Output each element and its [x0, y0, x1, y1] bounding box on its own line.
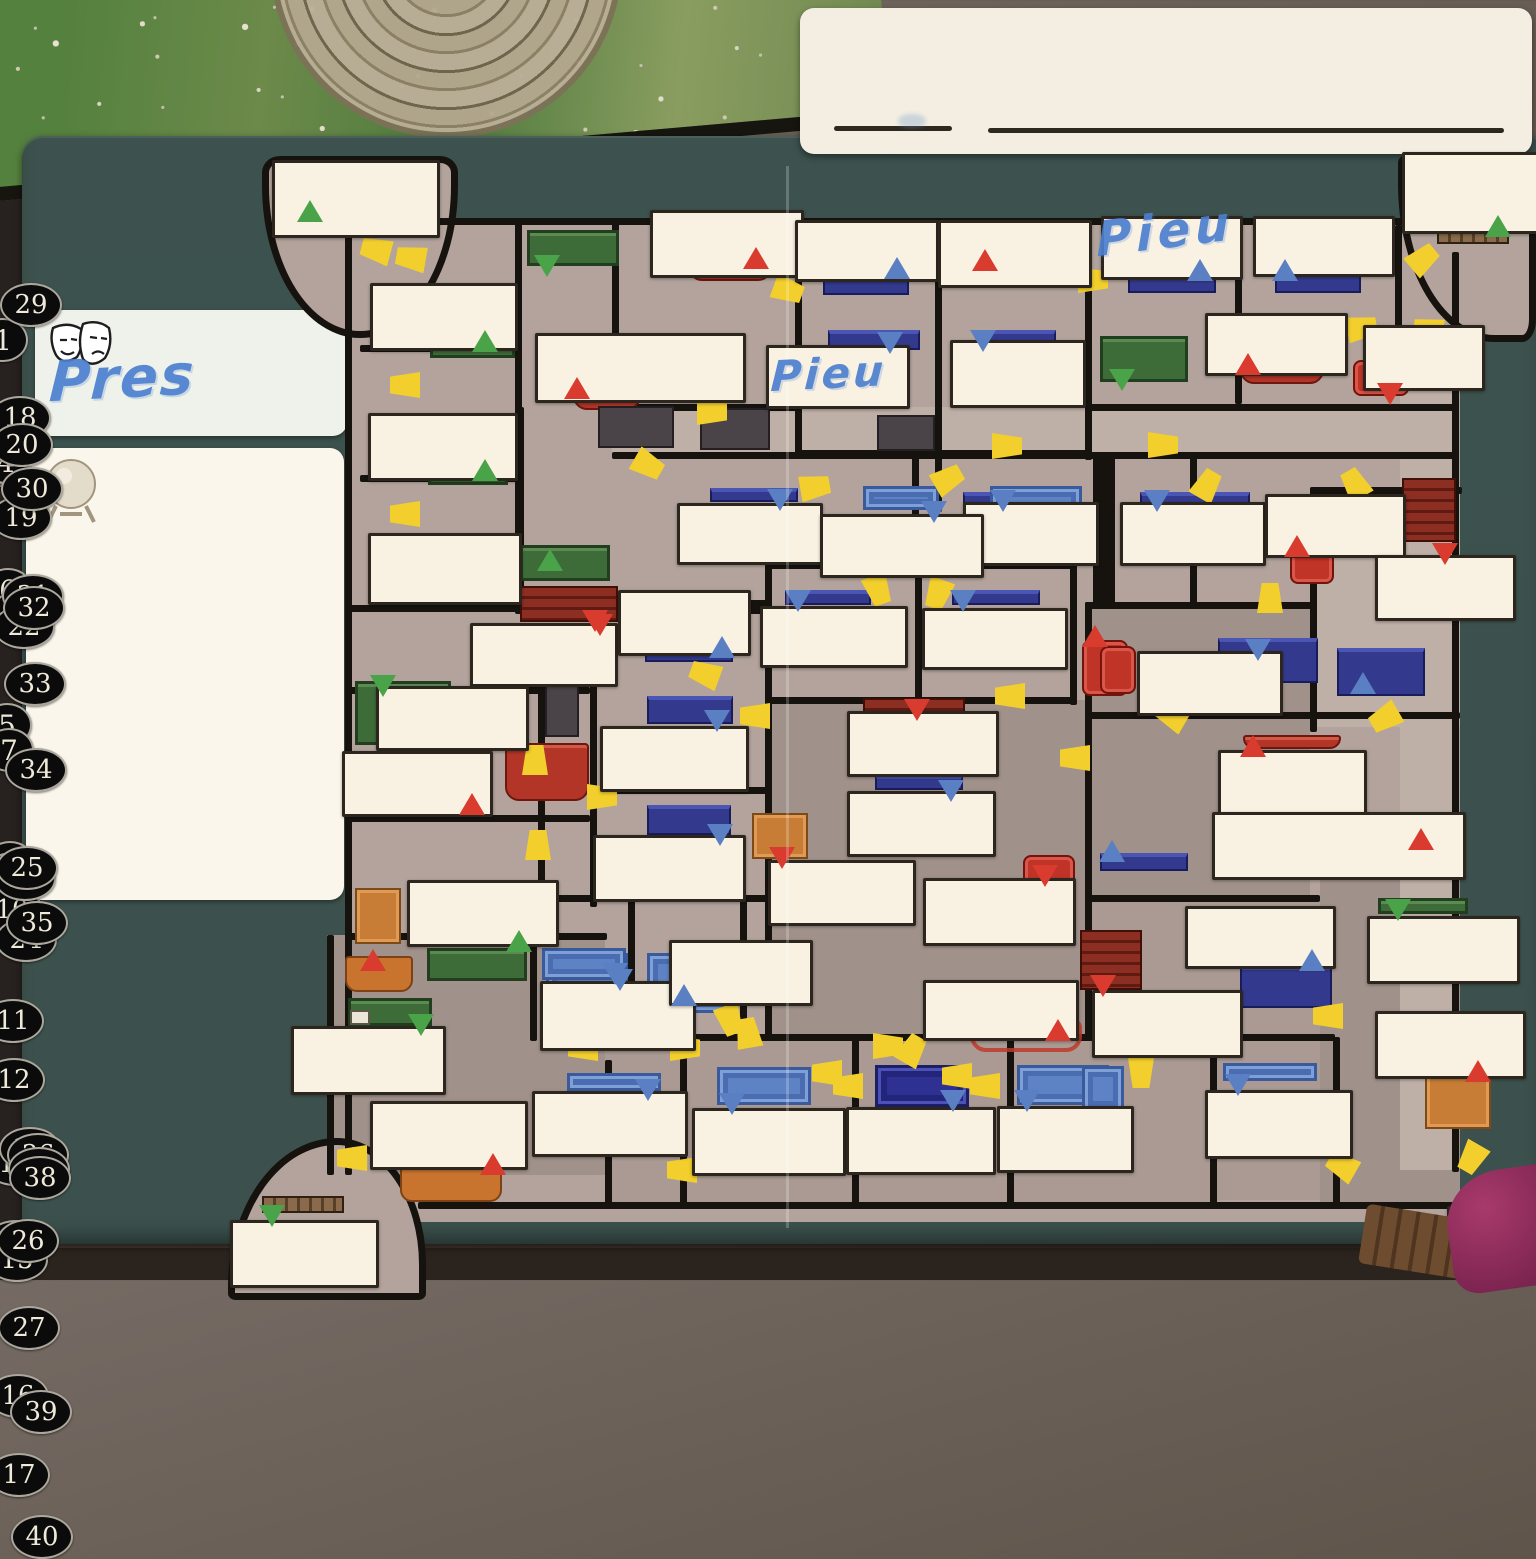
blank-room-label: [593, 835, 746, 902]
blank-room-label: [795, 220, 939, 282]
blank-room-label: [1253, 216, 1395, 277]
wall-segment: [1395, 225, 1402, 333]
blank-room-label: [847, 791, 996, 857]
blank-room-label: [368, 413, 518, 481]
blank-room-label: [1402, 152, 1536, 234]
blank-room-label: [1367, 916, 1520, 984]
room-number-badge: 38: [9, 1156, 71, 1200]
blue-bed: [1337, 648, 1425, 696]
small-door: [350, 1010, 370, 1025]
bookshelf: [1402, 478, 1456, 542]
blank-room-label: [997, 1106, 1134, 1173]
room-number-badge: 35: [6, 901, 68, 945]
wooden-cabinet: [355, 888, 401, 944]
room-number-badge: 30: [1, 467, 63, 511]
blank-room-label: [1375, 555, 1516, 621]
blank-room-label: [1218, 750, 1367, 817]
green-bed: [520, 545, 610, 581]
blank-room-label: [846, 1107, 996, 1175]
blank-room-label: [470, 623, 618, 687]
blank-room-label: [820, 514, 984, 578]
room-number-badge: 11: [0, 999, 44, 1043]
blank-room-label: [1363, 325, 1485, 391]
blue-bed: [1240, 966, 1332, 1008]
wall-segment: [1085, 404, 1457, 411]
wall-segment: [915, 565, 922, 703]
wall-segment: [418, 1202, 1458, 1209]
blank-room-label: [938, 220, 1092, 288]
blank-room-label: [922, 608, 1068, 670]
blank-room-label: [618, 590, 751, 656]
blank-room-label: [368, 533, 522, 605]
blank-room-label: [760, 606, 908, 668]
wall-segment: [1085, 895, 1320, 902]
blank-room-label: [532, 1091, 688, 1157]
blank-room-label: [768, 860, 916, 926]
blank-room-label: [950, 340, 1086, 408]
blank-room-label: [1092, 990, 1243, 1058]
blank-room-label: [1205, 313, 1348, 376]
blank-room-label: [692, 1108, 846, 1176]
red-armchair: [1100, 646, 1136, 694]
room-number-badge: 29: [0, 283, 62, 327]
room-number-badge: 40: [11, 1515, 73, 1559]
blank-room-label: [1375, 1011, 1526, 1079]
room-number-badge: 20: [0, 423, 53, 467]
blank-room-label: [600, 726, 749, 792]
room-number-badge: 33: [4, 662, 66, 706]
blank-room-label: [923, 878, 1076, 946]
room-number-badge: 27: [0, 1306, 60, 1350]
blank-room-label: [370, 283, 518, 351]
room-number-badge: 12: [0, 1058, 45, 1102]
blank-room-label: [376, 686, 529, 751]
alcove: [545, 683, 579, 737]
blank-room-label: [1205, 1090, 1353, 1159]
blank-room-label: [847, 711, 999, 777]
room-number-badge: 26: [0, 1219, 59, 1263]
alcove: [877, 415, 935, 451]
wall-segment: [612, 452, 1457, 459]
blank-room-label: [535, 333, 746, 403]
board-fold-crease: [786, 166, 789, 1228]
room-number-badge: 32: [3, 586, 65, 630]
green-bed: [427, 948, 527, 981]
blank-room-label: [370, 1101, 528, 1170]
blank-room-label: [1137, 651, 1283, 716]
wall-segment: [1070, 565, 1077, 705]
blank-room-label: [650, 210, 804, 278]
blank-room-label: [1120, 502, 1266, 566]
blank-room-label: [1265, 494, 1406, 558]
blank-room-label: [407, 880, 559, 947]
blank-room-label: [291, 1026, 446, 1095]
mansion-floor-plan: 1234567891011121314151617181920212223242…: [0, 0, 1536, 1280]
handwritten-note: Pieu: [769, 346, 887, 401]
room-number-badge: 34: [5, 748, 67, 792]
room-number-badge: 39: [10, 1390, 72, 1434]
blank-room-label: [272, 160, 440, 238]
room-number-badge: 17: [0, 1453, 50, 1497]
blank-room-label: [230, 1220, 379, 1288]
blank-room-label: [677, 503, 823, 565]
alcove: [598, 406, 674, 448]
